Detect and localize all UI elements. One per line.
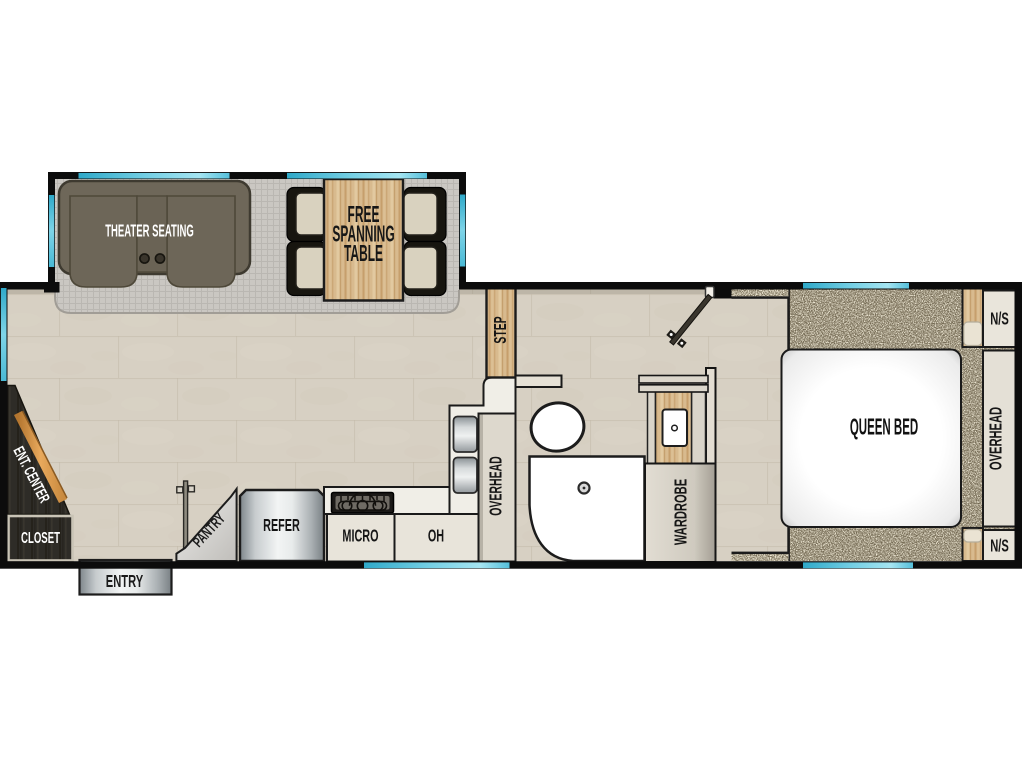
- svg-text:MICRO: MICRO: [342, 527, 378, 546]
- svg-text:CLOSET: CLOSET: [21, 529, 60, 547]
- svg-text:QUEEN BED: QUEEN BED: [850, 414, 918, 439]
- svg-text:N/S: N/S: [990, 309, 1009, 329]
- svg-text:STEP: STEP: [491, 316, 511, 343]
- svg-text:OVERHEAD: OVERHEAD: [986, 407, 1006, 470]
- svg-text:ENTRY: ENTRY: [106, 571, 143, 591]
- svg-text:REFER: REFER: [263, 517, 300, 536]
- svg-text:N/S: N/S: [990, 536, 1009, 556]
- svg-text:THEATER SEATING: THEATER SEATING: [105, 222, 194, 242]
- svg-text:OVERHEAD: OVERHEAD: [487, 456, 506, 515]
- svg-text:OH: OH: [428, 527, 444, 546]
- svg-text:WARDROBE: WARDROBE: [671, 479, 691, 545]
- svg-text:TABLE: TABLE: [344, 240, 383, 266]
